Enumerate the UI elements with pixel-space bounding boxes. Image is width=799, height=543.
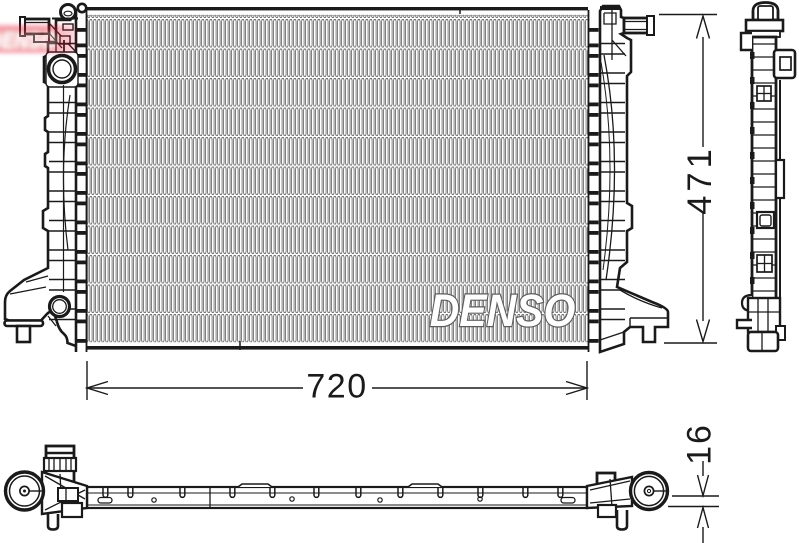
svg-text:16: 16	[681, 423, 719, 465]
svg-text:DENSO: DENSO	[430, 286, 576, 336]
svg-text:720: 720	[306, 368, 367, 406]
svg-text:DENSO: DENSO	[0, 31, 56, 52]
svg-text:471: 471	[681, 145, 719, 215]
